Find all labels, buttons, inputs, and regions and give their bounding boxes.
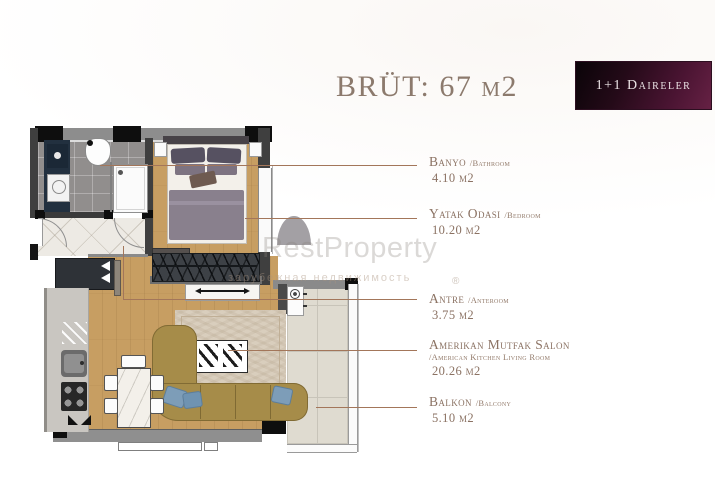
room-name: Yatak Odasi /Bedroom	[429, 207, 541, 221]
nightstand-right	[249, 142, 262, 157]
registered-mark: ®	[452, 276, 459, 287]
balcony-right-window	[348, 284, 358, 452]
left-wall	[30, 128, 38, 218]
shower-drain-dot	[118, 170, 123, 175]
balcony-bottom-window	[287, 444, 357, 453]
room-name-text: Antre	[429, 291, 464, 306]
bed-blanket	[169, 190, 244, 240]
table-tick-1	[303, 293, 307, 295]
dining-chair-right-1	[150, 375, 164, 391]
legend-item-balkon: Balkon /Balcony 5.10 м2	[429, 395, 511, 425]
cabinet-shelf-mark-1	[101, 261, 110, 271]
leader-line-antre	[123, 299, 417, 300]
room-name: Balkon /Balcony	[429, 395, 511, 409]
bed-pillow-2	[207, 147, 242, 164]
bath-bottom-wall	[35, 212, 112, 218]
legend-item-banyo: Banyo /Bathroom 4.10 м2	[429, 155, 510, 185]
wardrobe-rail	[153, 265, 257, 267]
corner-cabinet-mark-2	[81, 415, 91, 425]
bed-pillow-1	[171, 147, 206, 164]
table-tick-2	[303, 305, 307, 307]
stove	[61, 382, 87, 411]
room-name-sub: /Bathroom	[470, 158, 510, 168]
dining-chair-right-2	[150, 398, 164, 414]
room-area: 5.10 м2	[432, 412, 511, 425]
room-name: Amerikan Mutfak Salon /American Kitchen …	[429, 338, 570, 362]
floorplan-page: BRÜT: 67 м2 1+1 Daireler RestProperty за…	[0, 0, 715, 480]
toilet-flush-dot	[87, 140, 93, 146]
floor-plan	[30, 126, 362, 458]
page-title: BRÜT: 67 м2	[336, 70, 518, 104]
room-name-sub: /Anteroom	[468, 295, 509, 305]
legend-item-antre: Antre /Anteroom 3.75 м2	[429, 292, 509, 322]
watermark-tagline: зарубежная недвижимость	[228, 272, 411, 284]
corner-cabinet-mark-1	[68, 415, 78, 425]
sofa-seam-2	[235, 385, 236, 419]
sofa-pillow-2	[182, 391, 203, 409]
coffee-table-pattern-2	[223, 344, 242, 367]
left-wall-block	[30, 244, 38, 260]
dining-table	[117, 368, 151, 428]
nightstand-left	[154, 142, 167, 157]
tv-arrow-left	[195, 288, 201, 294]
room-name-sub: /Balcony	[476, 398, 511, 408]
leader-line-yatak	[245, 218, 417, 219]
sink-bowl-icon	[54, 152, 61, 159]
leader-line-antre-vertical	[123, 246, 124, 300]
legend-item-yatak-odasi: Yatak Odasi /Bedroom 10.20 м2	[429, 207, 541, 237]
room-name-sub: /American Kitchen Living Room	[429, 353, 570, 362]
tv-line	[200, 290, 245, 292]
room-area: 3.75 м2	[432, 309, 509, 322]
counter-board-marks	[62, 322, 87, 344]
room-name: Banyo /Bathroom	[429, 155, 510, 169]
hall-radiator	[114, 260, 121, 296]
room-name-text: Banyo	[429, 154, 466, 169]
bottom-window	[118, 442, 202, 451]
coffee-table-pattern-1	[199, 344, 218, 367]
bottom-window-2	[204, 442, 218, 451]
sofa-seam-3	[270, 385, 271, 419]
room-name-text: Balkon	[429, 394, 472, 409]
column-2	[113, 126, 141, 142]
bed-headboard	[163, 136, 249, 144]
room-name-text: Yatak Odasi	[429, 206, 501, 221]
apartment-type-badge: 1+1 Daireler	[575, 61, 712, 110]
dining-chair-left-1	[104, 375, 118, 391]
watermark-brand: RestProperty	[262, 232, 437, 265]
leader-line-balkon	[316, 407, 417, 408]
shower-glass	[110, 162, 112, 212]
leader-line-banyo	[100, 165, 417, 166]
legend-item-salon: Amerikan Mutfak Salon /American Kitchen …	[429, 338, 570, 378]
room-name-text: Amerikan Mutfak Salon	[429, 337, 570, 352]
washer-drum-icon	[52, 180, 66, 194]
faucet-dot	[80, 361, 84, 365]
dining-chair-left-2	[104, 398, 118, 414]
room-area: 20.26 м2	[432, 365, 570, 378]
dining-chair-top	[121, 355, 146, 368]
balcony-outer-line	[358, 284, 359, 452]
tv-arrow-right	[244, 288, 250, 294]
room-name-sub: /Bedroom	[504, 210, 540, 220]
anteroom-living-threshold	[88, 254, 148, 257]
cabinet-shelf-mark-2	[101, 273, 110, 283]
room-area: 4.10 м2	[432, 172, 510, 185]
plant-icon	[290, 289, 300, 299]
room-area: 10.20 м2	[432, 224, 541, 237]
leader-line-salon	[228, 350, 417, 351]
room-name: Antre /Anteroom	[429, 292, 509, 306]
